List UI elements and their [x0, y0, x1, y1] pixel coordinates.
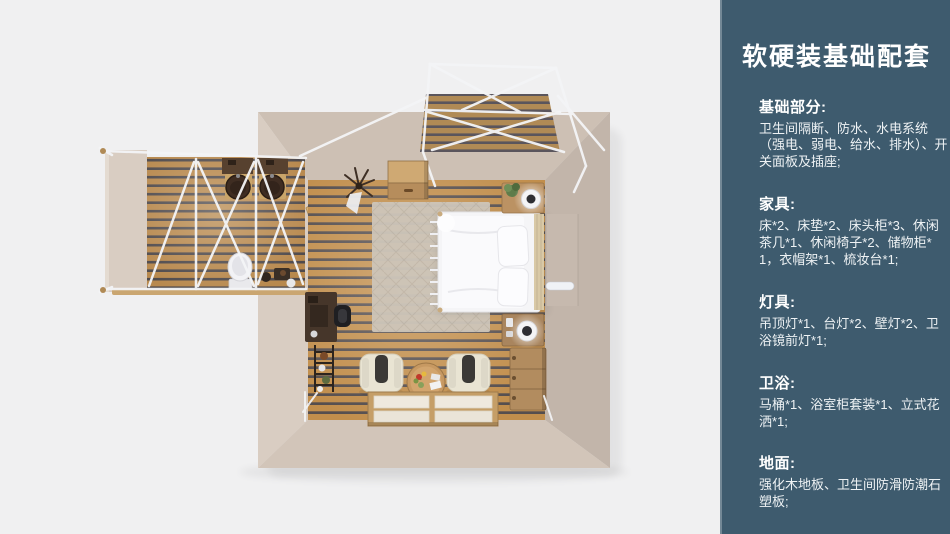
info-panel: 软硬装基础配套 基础部分: 卫生间隔断、防水、水电系统（强电、弱电、给水、排水）…	[720, 0, 950, 534]
slide: 软硬装基础配套 基础部分: 卫生间隔断、防水、水电系统（强电、弱电、给水、排水）…	[0, 0, 950, 534]
section-furniture: 家具: 床*2、床垫*2、床头柜*3、休闲茶几*1、休闲椅子*2、储物柜*1，衣…	[759, 193, 949, 269]
storage-cabinet	[388, 161, 428, 199]
annex-left-wall-edge	[105, 150, 109, 292]
floorplan-render	[0, 0, 720, 534]
panel-sections: 基础部分: 卫生间隔断、防水、水电系统（强电、弱电、给水、排水）、开关面板及插座…	[759, 96, 949, 512]
section-body: 卫生间隔断、防水、水电系统（强电、弱电、给水、排水）、开关面板及插座;	[759, 121, 949, 172]
section-heading: 灯具:	[759, 291, 949, 312]
annex-left-wall	[105, 150, 147, 292]
section-heading: 卫浴:	[759, 372, 949, 393]
section-body: 马桶*1、浴室柜套装*1、立式花洒*1;	[759, 397, 949, 431]
section-lighting: 灯具: 吊顶灯*1、台灯*2、壁灯*2、卫浴镜前灯*1;	[759, 291, 949, 350]
section-heading: 家具:	[759, 193, 949, 214]
armchair-left	[359, 354, 403, 397]
pillow	[497, 225, 529, 267]
headboard	[534, 214, 544, 310]
dresser	[510, 348, 546, 410]
section-body: 吊顶灯*1、台灯*2、壁灯*2、卫浴镜前灯*1;	[759, 316, 949, 350]
nightstand-top	[502, 182, 548, 216]
section-bathroom: 卫浴: 马桶*1、浴室柜套装*1、立式花洒*1;	[759, 372, 949, 431]
pillow	[497, 267, 528, 306]
door-handle	[546, 282, 574, 290]
section-body: 强化木地板、卫生间防滑防潮石塑板;	[759, 477, 949, 511]
section-flooring: 地面: 强化木地板、卫生间防滑防潮石塑板;	[759, 452, 949, 511]
bathroom-annex	[100, 148, 336, 295]
section-body: 床*2、床垫*2、床头柜*3、休闲茶几*1、休闲椅子*2、储物柜*1，衣帽架*1…	[759, 218, 949, 269]
section-heading: 地面:	[759, 452, 949, 473]
nightstand-bottom	[502, 313, 545, 349]
porch-deck	[420, 94, 560, 152]
section-heading: 基础部分:	[759, 96, 949, 117]
section-basics: 基础部分: 卫生间隔断、防水、水电系统（强电、弱电、给水、排水）、开关面板及插座…	[759, 96, 949, 172]
floor-bed-platform	[368, 392, 498, 426]
armchair-right	[446, 354, 490, 397]
exterior-door	[546, 214, 578, 306]
panel-title: 软硬装基础配套	[742, 44, 936, 72]
double-bed	[430, 212, 548, 315]
